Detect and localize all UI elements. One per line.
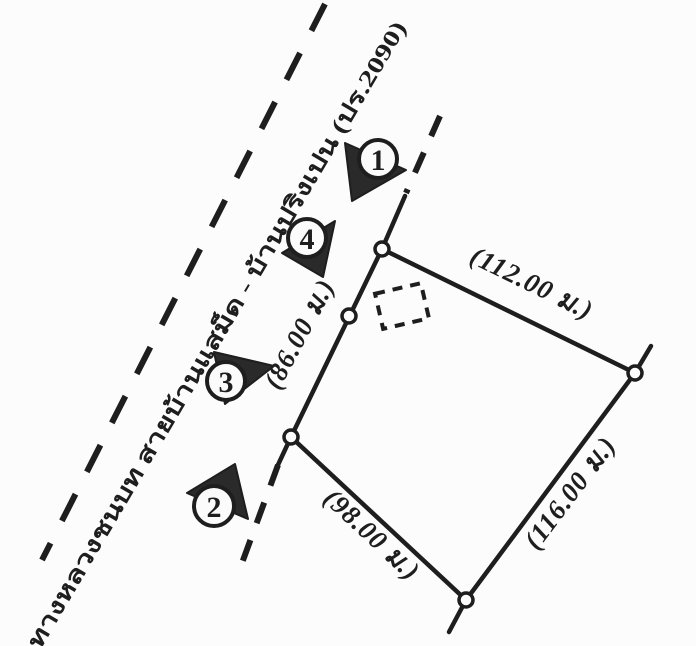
road-left-edge-dashed-line xyxy=(42,4,325,560)
road-right-edge-upper-dashed-line xyxy=(406,116,440,193)
marker-4-number: 4 xyxy=(300,223,315,256)
marker-1-flag: 1 xyxy=(345,140,406,201)
boundary-post-west-mid xyxy=(342,309,356,323)
boundary-post-northeast xyxy=(628,366,642,380)
dimension-label-west: (86.00 ม.) xyxy=(258,274,341,394)
boundary-post-south xyxy=(459,593,473,607)
marker-2-flag: 2 xyxy=(187,464,248,526)
boundary-post-southwest xyxy=(284,430,298,444)
dimension-label-south: (98.00 ม.) xyxy=(318,483,426,587)
marker-1-number: 1 xyxy=(371,144,386,177)
marker-3-number: 3 xyxy=(219,366,234,399)
structure-dashed-rectangle xyxy=(375,283,429,329)
marker-4-flag: 4 xyxy=(282,219,335,277)
parcel-boundary xyxy=(277,196,651,632)
parcel-edge-east xyxy=(466,373,635,600)
marker-2-number: 2 xyxy=(207,491,222,524)
survey-sketch-page: ทางหลวงชนบท สายบ้านแสม็ด - บ้านปริงเปน (… xyxy=(0,0,696,646)
survey-sketch-canvas: ทางหลวงชนบท สายบ้านแสม็ด - บ้านปริงเปน (… xyxy=(0,0,696,646)
boundary-post-northwest xyxy=(375,242,389,256)
road-name-label: ทางหลวงชนบท สายบ้านแสม็ด - บ้านปริงเปน (… xyxy=(20,15,411,646)
dimension-label-east: (116.00 ม.) xyxy=(518,430,622,554)
dimension-label-north: (112.00 ม.) xyxy=(466,240,599,325)
dimension-labels: (112.00 ม.) (116.00 ม.) (98.00 ม.) (86.0… xyxy=(258,240,622,586)
